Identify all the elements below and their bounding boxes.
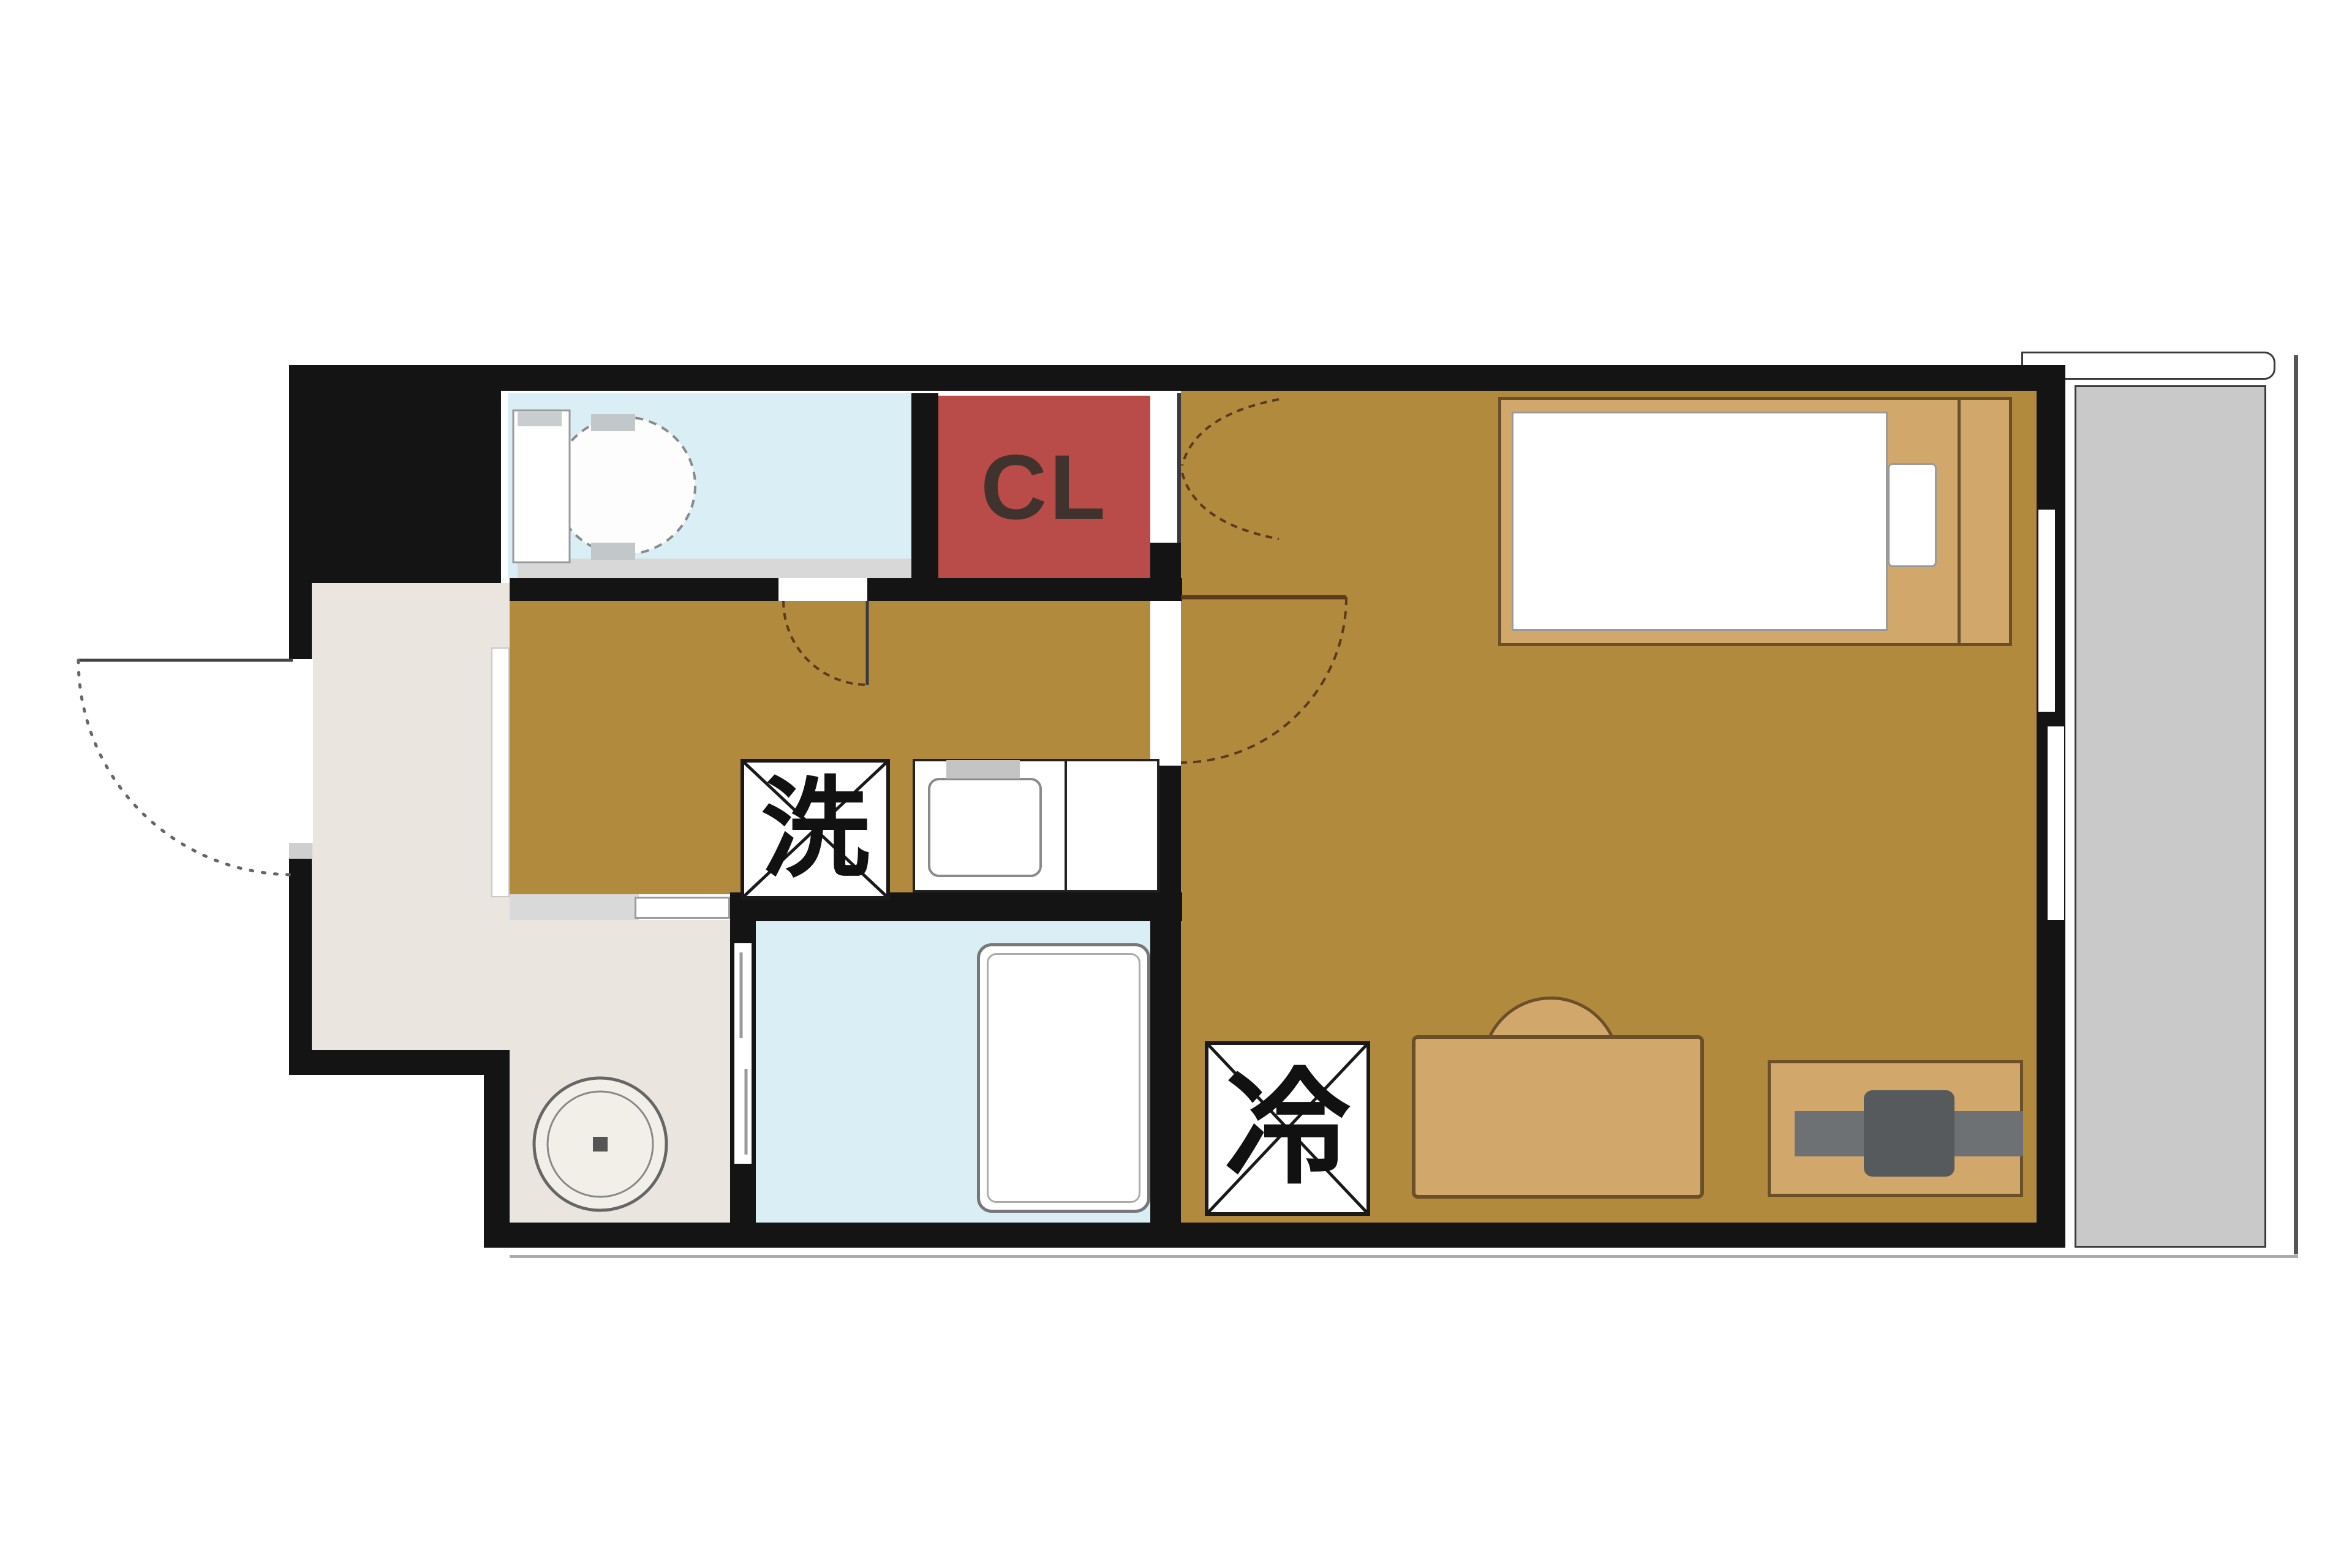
plan-linework [0, 0, 2352, 1568]
washing-machine-label: 洗 [741, 759, 890, 900]
closet-bifold-upper [1182, 399, 1279, 466]
closet-bifold-lower [1182, 473, 1279, 539]
room-door-arc [1181, 597, 1346, 763]
washroom-drain-dot [593, 1137, 608, 1151]
refrigerator-label: 冷 [1205, 1041, 1370, 1216]
toilet-hinge-top [591, 414, 635, 431]
toilet-door-arc [783, 601, 867, 685]
closet-label: CL [938, 396, 1150, 578]
entrance-door-arc [78, 660, 293, 875]
toilet-hinge-bottom [591, 543, 635, 560]
toilet-tank [513, 410, 570, 562]
toilet-tank-top [518, 412, 562, 426]
toilet-bowl [554, 417, 695, 554]
floorplan-canvas: CL 洗 冷 [0, 0, 2352, 1568]
